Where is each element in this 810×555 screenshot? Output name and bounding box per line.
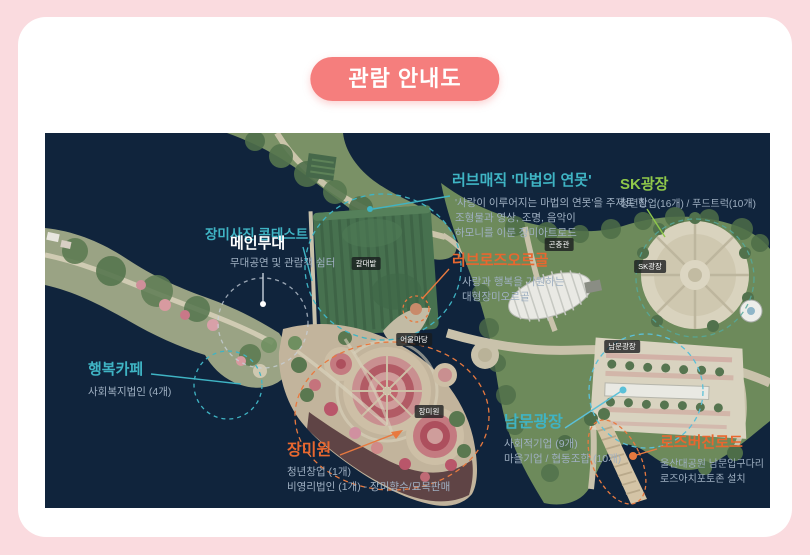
annotation-title: 로즈버진로드	[660, 434, 764, 452]
annotation-happy-cafe: 행복카페 사회복지법인 (4개)	[88, 361, 171, 400]
annotation-love-magic-pond: 러브매직 '마법의 연못' '사랑이 이루어지는 마법의 연못'을 주제로 한 …	[452, 172, 647, 241]
annotation-title: SK광장	[620, 176, 756, 194]
annotation-title: 러브매직 '마법의 연못'	[452, 172, 647, 190]
annotation-line: 청년창업(16개) / 푸드트럭(10개)	[620, 197, 756, 212]
map-badge-reed-field: 갈대밭	[352, 257, 381, 270]
map-badge-sk-plaza: SK광장	[634, 260, 666, 273]
annotation-line: 마을기업 / 협동조합 (10개)	[504, 452, 621, 467]
annotation-rose-virgin-road: 로즈버진로드 울산대공원 남문입구다리 로즈아치포토존 설치	[660, 434, 764, 487]
map-badge-south-gate: 남문광장	[604, 340, 640, 353]
annotation-title: 남문광장	[504, 414, 621, 432]
annotation-south-gate-plaza: 남문광장 사회적기업 (9개) 마을기업 / 협동조합 (10개)	[504, 414, 621, 467]
annotation-line: 하모니를 이룬 장미아트로드	[452, 226, 647, 241]
annotation-title: 러브로즈오르골	[452, 252, 564, 270]
card: 관람 안내도	[18, 17, 792, 537]
annotation-line: 사랑과 행복을 기원하는	[452, 275, 564, 290]
annotation-line: 로즈아치포토존 설치	[660, 472, 764, 487]
annotation-line: 울산대공원 남문입구다리	[660, 457, 764, 472]
page-background: 관람 안내도	[0, 0, 810, 555]
annotation-line: 비영리법인 (1개) - 장미향수/묘목판매	[287, 480, 450, 495]
annotation-title: 행복카페	[88, 361, 171, 379]
page-title: 관람 안내도	[348, 66, 461, 91]
map-badge-eoul-madang: 어울마당	[396, 333, 432, 346]
annotation-line: 무대공연 및 관람객 쉼터	[230, 256, 335, 271]
annotation-line: 청년창업 (1개)	[287, 465, 450, 480]
annotation-line: '사랑이 이루어지는 마법의 연못'을 주제로 한	[452, 196, 647, 211]
annotation-title: 메인무대	[230, 235, 335, 253]
annotation-sk-plaza: SK광장 청년창업(16개) / 푸드트럭(10개)	[620, 176, 756, 212]
annotation-rose-garden: 장미원 청년창업 (1개) 비영리법인 (1개) - 장미향수/묘목판매	[287, 442, 450, 495]
annotation-main-stage: 메인무대 무대공연 및 관람객 쉼터	[230, 235, 335, 271]
annotation-line: 사회적기업 (9개)	[504, 437, 621, 452]
annotation-line: 사회복지법인 (4개)	[88, 385, 171, 400]
annotation-love-rose-orgel: 러브로즈오르골 사랑과 행복을 기원하는 대형장미오르골	[452, 252, 564, 305]
title-badge: 관람 안내도	[310, 57, 499, 101]
annotation-title: 장미원	[287, 442, 450, 460]
park-map: 곤충관 SK광장 갈대밭 어울마당 장미원 남문광장 장미사진 콘테스트 메인무…	[45, 133, 770, 508]
annotation-line: 조형물과 영상, 조명, 음악이	[452, 211, 647, 226]
map-badge-rose-garden: 장미원	[415, 405, 444, 418]
annotation-line: 대형장미오르골	[452, 290, 564, 305]
